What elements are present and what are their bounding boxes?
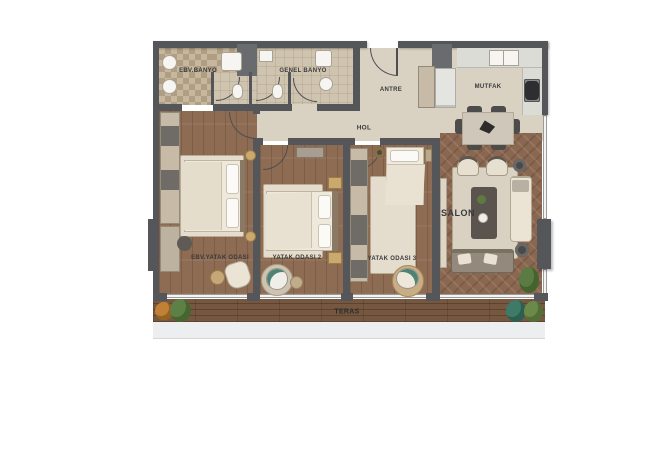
right-pillar: [537, 219, 551, 269]
bed3-armchair: [396, 268, 419, 289]
bottom-wall-seg-right: [534, 293, 548, 301]
sofa-cushion-2: [483, 253, 498, 265]
bed2-bed3-wall: [343, 145, 350, 295]
wc-stall-wall-2: [249, 72, 252, 105]
bed3-blanket: [385, 164, 425, 205]
master-side-table: [210, 270, 225, 285]
salon-armchair-1: [457, 156, 479, 176]
hol-bedroom-wall-3: [380, 138, 440, 145]
bottom-wall-seg-left: [153, 293, 167, 301]
master-nightstand-2: [245, 231, 256, 242]
hol-bedroom-wall-1: [253, 138, 263, 145]
coffee-table-plant: [477, 195, 486, 204]
salon-lamp-top: [513, 159, 526, 172]
kitchen-sink-divider: [503, 51, 504, 65]
label-yatak-odasi-3: YATAK ODASI 3: [368, 256, 417, 262]
bath-bedroom-wall-left: [159, 104, 182, 111]
terrace-shadow-strip: [153, 322, 545, 339]
bed2-headboard: [332, 191, 338, 251]
ebv-shower-tray: [221, 52, 242, 71]
ebv-sink-1: [162, 55, 177, 70]
sofa-cushion-1: [457, 253, 471, 265]
bed3-wardrobe-seg-3: [351, 260, 367, 278]
label-teras: TERAS: [334, 309, 359, 316]
antre-wardrobe: [418, 66, 435, 108]
label-salon: SALON: [441, 208, 475, 218]
label-antre: ANTRE: [380, 87, 402, 93]
bed2-dresser: [296, 147, 324, 158]
bed3-wall-shelf: [425, 149, 432, 162]
bath-antre-wall: [353, 48, 360, 104]
genel-sink: [319, 77, 333, 91]
salon-console: [440, 178, 447, 268]
terrace-plant-right-2: [524, 301, 543, 322]
bed3-wardrobe-seg-1: [351, 160, 367, 186]
master-bed2-wall: [253, 139, 260, 295]
genel-washer: [259, 50, 273, 62]
master-bed-headboard: [240, 160, 245, 232]
master-lower-cabinet: [160, 226, 180, 272]
bed2-blanket: [266, 192, 312, 250]
label-hol: HOL: [357, 125, 372, 132]
bed2-pillow-1: [318, 195, 331, 219]
floor-plan: EBV.BANYO GENEL BANYO ANTRE MUTFAK HOL E…: [0, 0, 660, 466]
terrace-plant-right-1: [506, 300, 526, 322]
label-genel-banyo: GENEL BANYO: [279, 68, 326, 74]
wc-stall-wall-1: [211, 72, 214, 105]
salon-armchair-2: [486, 156, 508, 176]
genelbath-hol-wall-left: [257, 104, 292, 111]
outer-wall-top-left: [153, 41, 367, 48]
label-mutfak: MUTFAK: [475, 84, 502, 90]
outer-wall-top-right: [398, 41, 548, 48]
kitchen-stove: [524, 79, 540, 102]
bed3-salon-wall: [432, 141, 440, 295]
master-pouf: [177, 236, 192, 251]
bed3-pillow: [390, 150, 419, 162]
bed2-pouf: [290, 276, 303, 289]
wc2-toilet: [272, 84, 283, 99]
coffee-table-decor: [478, 213, 488, 223]
right-window-lower: [543, 269, 547, 295]
bed3-wardrobe-seg-2: [351, 215, 367, 245]
shaft-kitchen: [432, 44, 452, 68]
terrace-plant-left-2: [170, 299, 191, 322]
right-window-upper: [543, 115, 547, 219]
master-wardrobe-seg-2: [161, 170, 179, 190]
bed2-nightstand-1: [328, 177, 342, 189]
entry-door-leaf: [396, 48, 398, 75]
label-ebv-yatak-odasi: EBV.YATAK ODASI: [191, 255, 249, 261]
master-bed-blanket: [184, 162, 222, 230]
label-yatak-odasi-2: YATAK ODASI 2: [273, 255, 322, 261]
kitchen-sink: [489, 50, 519, 66]
bath-bedroom-wall-mid: [213, 104, 257, 111]
outer-wall-right-upper: [542, 41, 548, 115]
bed2-armchair: [266, 268, 288, 290]
ebv-sink-2: [162, 79, 177, 94]
hol-bedroom-wall-2: [288, 138, 355, 145]
genelbath-hol-wall-right: [317, 104, 360, 111]
salon-lamp-bottom: [515, 243, 529, 257]
chaise-pillow: [512, 180, 529, 192]
bed3-stool: [374, 147, 385, 158]
bed2-pillow-2: [318, 224, 331, 248]
salon-plant: [519, 267, 539, 293]
master-pillow-1: [226, 164, 239, 194]
master-pillow-2: [226, 198, 239, 228]
label-ebv-banyo: EBV.BANYO: [179, 68, 217, 74]
master-wardrobe-seg-1: [161, 126, 179, 146]
master-nightstand-1: [245, 150, 256, 161]
kitchen-fridge: [435, 68, 456, 108]
wc1-toilet: [232, 84, 243, 99]
bed2-nightstand-2: [328, 252, 342, 264]
wc-stall-wall-3: [288, 72, 291, 105]
left-pillar: [148, 219, 159, 271]
genel-shower-tray: [315, 50, 332, 67]
